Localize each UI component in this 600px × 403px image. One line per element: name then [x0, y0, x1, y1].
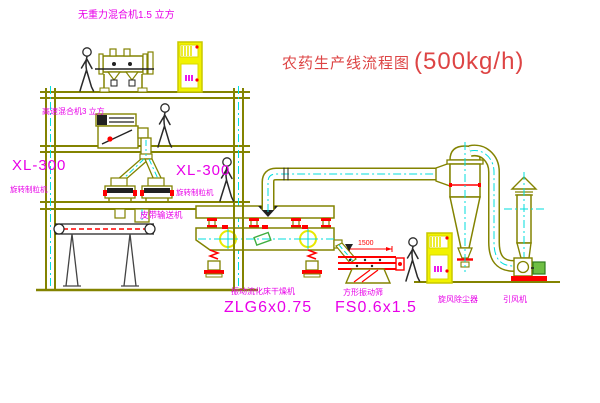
- label-gravity-mixer: 无重力混合机1.5 立方: [78, 11, 175, 21]
- label-dryer-model: ZLG6x0.75: [224, 300, 312, 316]
- control-cabinet-2: [427, 233, 452, 283]
- vibrating-screen-drawing: [336, 243, 404, 283]
- label-highspeed-mixer: 高速混合机3 立方: [42, 108, 105, 116]
- fluid-bed-dryer-drawing: [196, 206, 342, 277]
- label-fan: 引风机: [503, 296, 527, 304]
- process-flow-diagram: 农药生产线流程图 (500kg/h) 无重力混合机1.5 立方 高速混合机3 立…: [0, 0, 600, 403]
- title-text: 农药生产线流程图: [282, 52, 410, 73]
- label-granulator-left-model: XL-300: [12, 158, 66, 173]
- diagram-title: 农药生产线流程图 (500kg/h): [282, 48, 524, 76]
- label-dryer-name: 振动流化床干燥机: [231, 288, 295, 296]
- granulator-left-drawing: [103, 178, 137, 218]
- label-belt-conveyor: 皮带输送机: [140, 211, 183, 220]
- person-figure-2: [158, 104, 172, 147]
- person-figure-1: [80, 48, 94, 91]
- label-cyclone: 旋风除尘器: [438, 296, 478, 304]
- label-granulator-left-name: 旋转制粒机: [10, 186, 48, 194]
- control-cabinet-1: [178, 42, 202, 92]
- belt-conveyor-drawing: [54, 224, 155, 286]
- title-capacity: (500kg/h): [414, 48, 524, 76]
- screen-dimension-text: 1500: [358, 240, 374, 247]
- label-screen-name: 方形振动筛: [343, 289, 383, 297]
- fan-drawing: [511, 258, 547, 281]
- person-figure-4: [406, 238, 420, 281]
- high-speed-mixer-drawing: [96, 114, 148, 148]
- label-screen-model: FS0.6x1.5: [335, 300, 417, 316]
- label-granulator-right-model: XL-300: [176, 163, 230, 178]
- label-granulator-right-name: 旋转制粒机: [176, 189, 214, 197]
- gravity-free-mixer-drawing: [95, 49, 154, 92]
- exhaust-duct-drawing: [268, 163, 450, 212]
